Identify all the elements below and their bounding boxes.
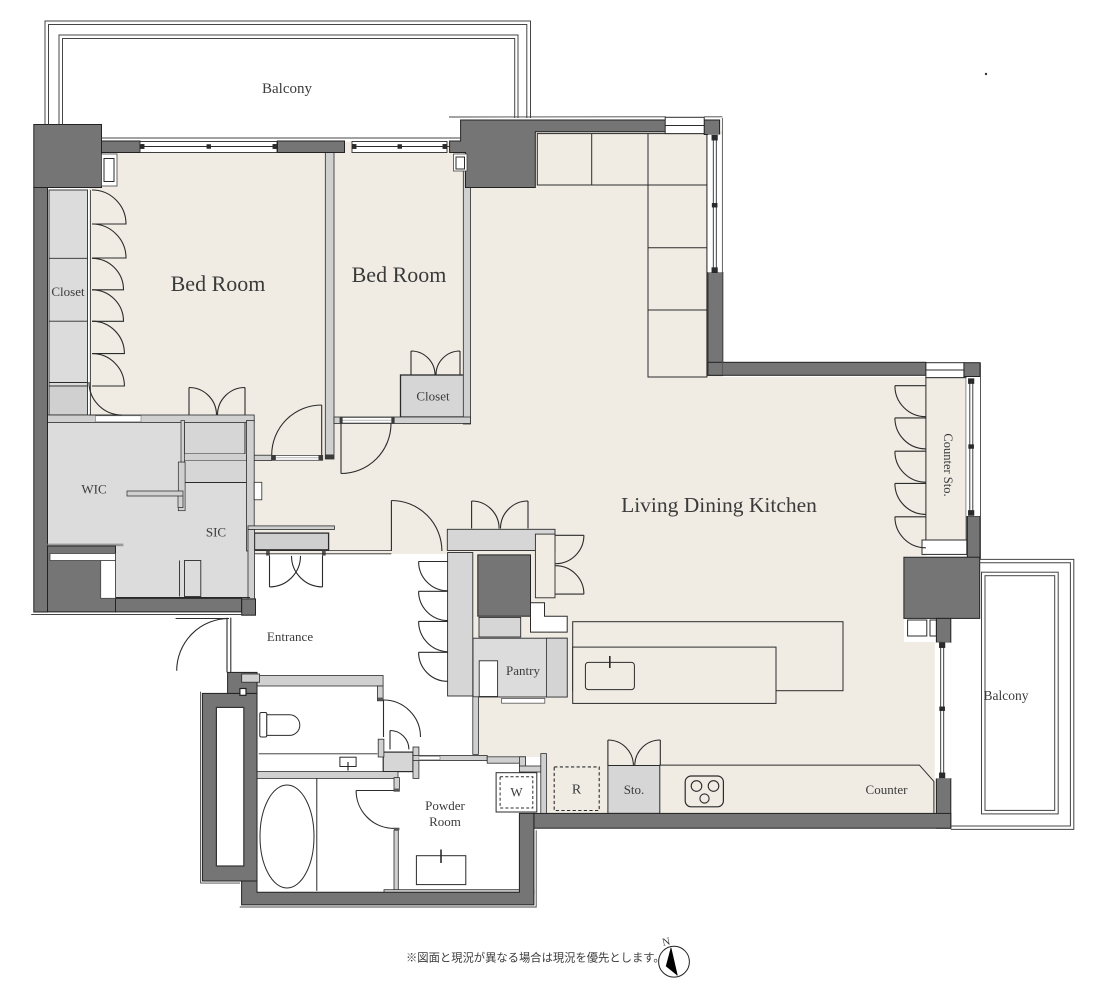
- svg-text:Pantry: Pantry: [506, 663, 540, 678]
- svg-text:Sto.: Sto.: [624, 782, 645, 797]
- svg-text:Closet: Closet: [51, 284, 85, 299]
- svg-text:SIC: SIC: [206, 525, 226, 540]
- svg-text:※図面と現況が異なる場合は現況を優先とします。: ※図面と現況が異なる場合は現況を優先とします。: [406, 951, 665, 965]
- svg-text:Counter: Counter: [866, 782, 909, 797]
- svg-text:W: W: [510, 785, 523, 800]
- svg-text:Bed Room: Bed Room: [352, 262, 447, 287]
- svg-text:Living Dining Kitchen: Living Dining Kitchen: [621, 493, 817, 517]
- svg-text:Closet: Closet: [416, 389, 450, 404]
- svg-text:R: R: [572, 783, 582, 798]
- svg-text:Room: Room: [429, 814, 461, 829]
- svg-text:Entrance: Entrance: [267, 629, 313, 644]
- svg-text:WIC: WIC: [81, 482, 106, 497]
- svg-text:Balcony: Balcony: [984, 688, 1029, 703]
- svg-text:Bed Room: Bed Room: [171, 271, 266, 296]
- svg-text:Counter Sto.: Counter Sto.: [941, 433, 955, 496]
- svg-text:Powder: Powder: [425, 798, 465, 813]
- svg-text:Balcony: Balcony: [262, 81, 312, 97]
